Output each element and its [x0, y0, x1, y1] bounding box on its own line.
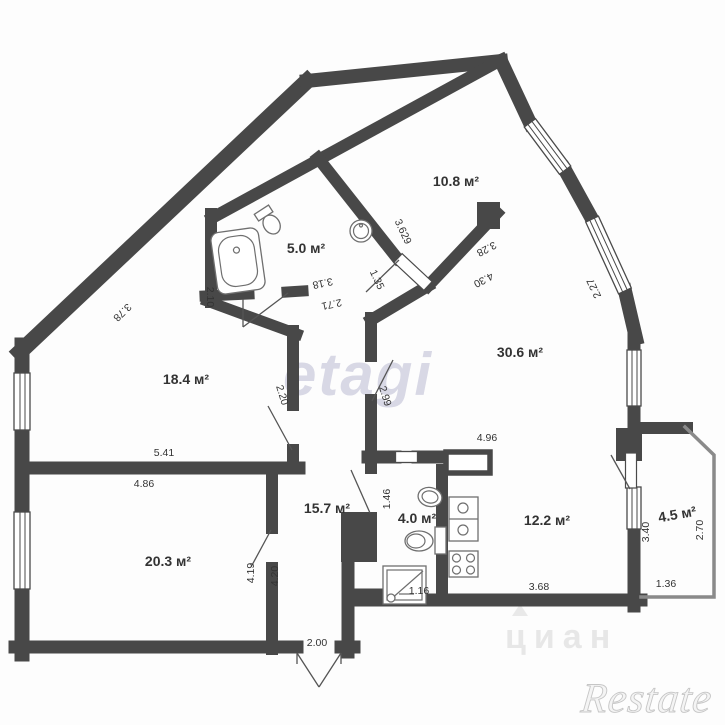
floor-plan-page: etagi циан [0, 0, 725, 725]
dimension-label-1.46: 1.46 [381, 489, 393, 510]
room-label-15.7-м²: 15.7 м² [304, 500, 350, 516]
dimension-label-2.71: 2.71 [320, 296, 343, 312]
dimension-label-4.86: 4.86 [134, 478, 155, 490]
dimension-label-2.10: 2.10 [204, 287, 216, 308]
dimension-label-4.30: 4.30 [471, 270, 495, 290]
dimension-label-2.70: 2.70 [694, 520, 706, 541]
dimension-label-4.96: 4.96 [477, 432, 498, 444]
room-label-4.0-м²: 4.0 м² [398, 510, 437, 526]
dimension-label-4.20: 4.20 [269, 566, 281, 587]
room-label-5.0-м²: 5.0 м² [287, 240, 326, 256]
toilet-wc [405, 527, 446, 554]
sink-hall [350, 220, 372, 242]
window-right-living [627, 350, 641, 406]
dimension-label-4.19: 4.19 [245, 563, 257, 584]
window-kitchen [627, 487, 641, 529]
dimension-label-3.78: 3.78 [110, 301, 133, 324]
room-label-10.8-м²: 10.8 м² [433, 173, 479, 189]
room-label-12.2-м²: 12.2 м² [524, 512, 570, 528]
cian-watermark: циан [505, 618, 618, 656]
entrance-double-door [297, 653, 341, 687]
room184-door [268, 406, 292, 450]
right-diagonal-wall-1 [501, 61, 530, 123]
restate-watermark-group: Restate [578, 675, 715, 722]
floor-plan-drawing: etagi циан [0, 0, 725, 725]
kitchen-sink-unit [449, 497, 478, 541]
room-label-18.4-м²: 18.4 м² [163, 371, 209, 387]
hall-living-wall [371, 286, 428, 320]
bathtub [210, 227, 266, 295]
bathroom-right-wall [318, 158, 397, 258]
room-label-20.3-м²: 20.3 м² [145, 553, 191, 569]
restate-watermark: Restate [578, 675, 715, 722]
dimension-label-1.36: 1.36 [656, 578, 677, 590]
room203-door [251, 530, 271, 567]
hall-door-slab [394, 254, 432, 291]
divider-junction-block [477, 202, 500, 229]
dimension-label-3.18: 3.18 [311, 275, 334, 291]
window-top-right-1 [524, 119, 570, 175]
dimension-label-3.40: 3.40 [640, 522, 652, 543]
dimension-label-1.16: 1.16 [409, 585, 430, 597]
dimension-label-5.41: 5.41 [154, 447, 175, 459]
window-left-2 [14, 512, 30, 589]
dimension-label-3.68: 3.68 [529, 581, 550, 593]
etagi-watermark: etagi [283, 341, 433, 408]
stove [449, 551, 478, 577]
dimension-label-2.00: 2.00 [307, 637, 328, 649]
kitchen-wall-opening [396, 452, 418, 463]
window-left-1 [14, 373, 30, 430]
dimension-label-3.629: 3.629 [392, 217, 414, 246]
room-label-4.5-м²: 4.5 м² [657, 503, 698, 525]
pass-through-window [446, 452, 490, 473]
hall-bottom-wall [207, 301, 297, 334]
dimension-label-2.27: 2.27 [584, 276, 604, 300]
room-label-30.6-м²: 30.6 м² [497, 344, 543, 360]
wc-door [351, 470, 370, 513]
right-diagonal-wall-2 [565, 170, 592, 219]
